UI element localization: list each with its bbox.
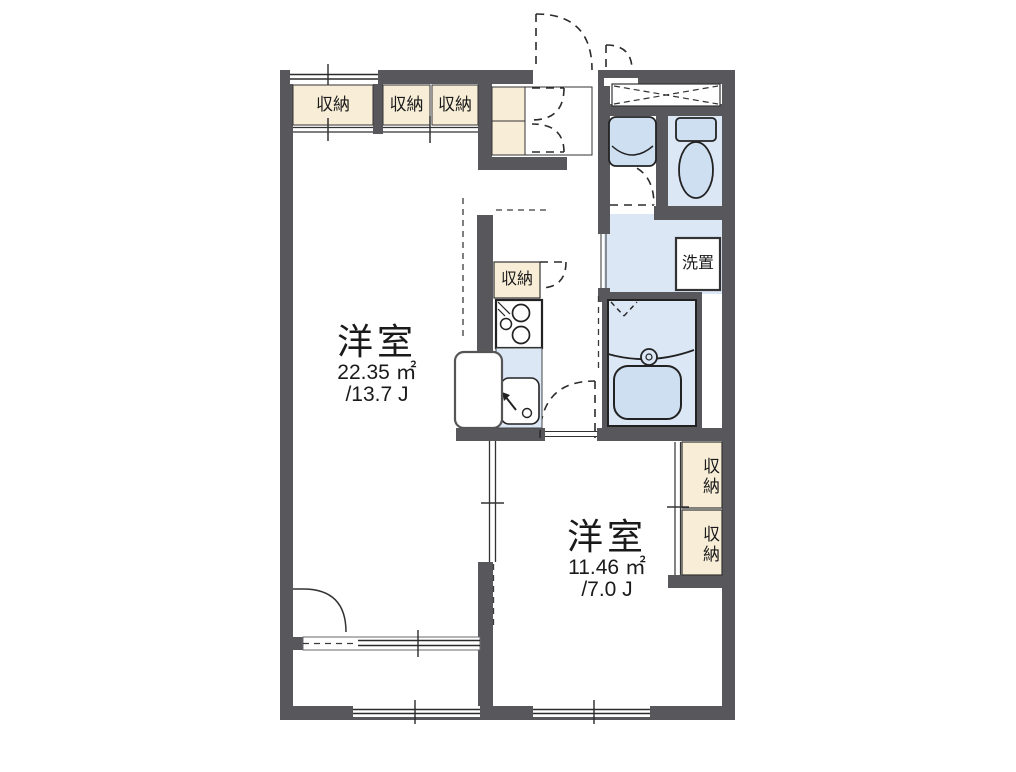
room1-area-m2: 22.35 ㎡ <box>287 362 467 385</box>
bathtub <box>614 366 681 419</box>
toilet-bowl <box>679 142 713 198</box>
label-closet-room2-top: 収納 <box>682 446 722 508</box>
opening-window-bottom-1 <box>353 706 480 717</box>
room2-label-block: 洋室 11.46 ㎡ /7.0 J <box>517 517 697 602</box>
opening-entrance <box>533 70 598 84</box>
label-closet-3: 収納 <box>432 85 478 125</box>
opening-room2-door <box>545 428 597 441</box>
wall-balcony-stub <box>293 637 303 650</box>
wall-entry-left <box>478 84 492 160</box>
bathroom <box>608 300 696 426</box>
kitchen <box>455 300 542 428</box>
small-door-arc <box>606 45 632 70</box>
opening-window-bottom-2 <box>533 706 650 717</box>
floor-plan-canvas: 収納 収納 収納 収納 収納 収納 洗置 洋室 22.35 ㎡ /13.7 J … <box>0 0 1016 772</box>
label-closet-1: 収納 <box>293 85 373 125</box>
entrance-door-arc <box>536 14 592 70</box>
label-washer-space: 洗置 <box>676 238 720 290</box>
floor-plan-drawing <box>0 0 1016 772</box>
wall-kitchen-left <box>477 215 493 368</box>
room2-area-tatami: /7.0 J <box>517 579 697 602</box>
wall-entry-bottom <box>478 157 567 170</box>
wall-washer-top <box>654 206 722 220</box>
wall-bottom <box>280 706 735 720</box>
room1-area-tatami: /13.7 J <box>287 384 467 407</box>
washbasin-door-arc <box>610 162 654 205</box>
room1-name: 洋室 <box>287 322 467 362</box>
wall-basin-toilet <box>656 112 668 208</box>
sink-drain <box>523 409 532 418</box>
toilet <box>676 118 716 198</box>
entry-closet <box>525 87 592 155</box>
room2-area-m2: 11.46 ㎡ <box>517 557 697 580</box>
toilet-tank <box>676 118 716 141</box>
wall-washer-left-top <box>598 206 610 234</box>
kitchen-closet-door-arc <box>540 262 566 288</box>
kitchen-sink <box>501 378 539 424</box>
room1-balcony-door <box>293 589 346 632</box>
shoe-cabinet <box>612 84 720 106</box>
wall-room-partition <box>478 562 493 707</box>
label-closet-2: 収納 <box>383 85 430 125</box>
opening-window-top <box>290 70 378 84</box>
washbasin <box>609 117 656 166</box>
label-closet-kitchen: 収納 <box>494 262 540 298</box>
wall-closet-stub <box>373 84 383 134</box>
bath-faucet <box>641 349 657 365</box>
room1-label-block: 洋室 22.35 ㎡ /13.7 J <box>287 322 467 407</box>
room2-name: 洋室 <box>517 517 697 557</box>
wall-right <box>722 70 735 720</box>
